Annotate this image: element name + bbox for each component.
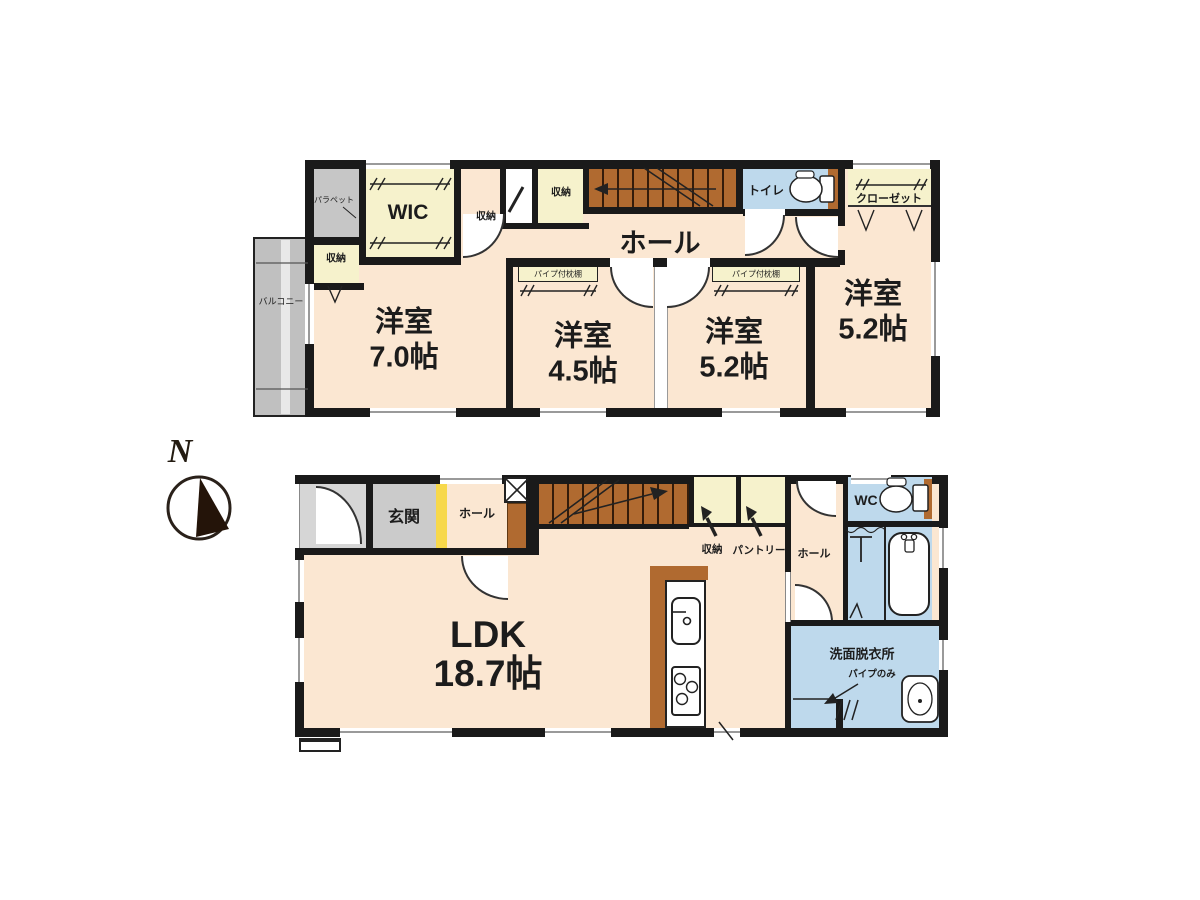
window-washroom-right bbox=[939, 640, 948, 670]
pantry-label: パントリー bbox=[732, 543, 785, 558]
pantry-1f bbox=[741, 477, 785, 523]
window-wc-top bbox=[851, 475, 891, 484]
storage-1f bbox=[694, 477, 736, 523]
window-ldk-bottom-2 bbox=[545, 728, 611, 737]
ldk-size: 18.7帖 bbox=[433, 653, 542, 694]
genkan-label: 玄関 bbox=[388, 503, 420, 527]
kitchen-counter-top-edge bbox=[650, 566, 708, 580]
wall-hall-right bbox=[526, 477, 539, 555]
hall-label-1f-entrance: ホール bbox=[459, 505, 495, 522]
storage-label-1f: 収納 bbox=[702, 542, 723, 557]
hall-label-1f-corridor: ホール bbox=[798, 545, 831, 561]
window-ldk-left-2 bbox=[295, 638, 304, 682]
wall-ldk-hallcol-upper bbox=[785, 477, 791, 572]
bathroom-divider bbox=[884, 527, 886, 620]
kitchen-stove-icon bbox=[671, 666, 701, 716]
bathtub-icon bbox=[888, 532, 930, 616]
wc-label: WC bbox=[854, 492, 877, 508]
stairs-floor1-base bbox=[539, 524, 689, 529]
wall-storage-pantry-bottom bbox=[689, 523, 785, 527]
floor1-fixture-icons bbox=[0, 0, 1200, 900]
ldk-label: LDK 18.7帖 bbox=[433, 616, 542, 694]
window-bath-right bbox=[939, 528, 948, 568]
window-ldk-bottom-1 bbox=[340, 728, 452, 737]
wc-door-strip bbox=[924, 479, 932, 519]
wall-porch-genkan bbox=[366, 484, 373, 548]
ldk-hallcol-opening bbox=[785, 572, 791, 622]
window-ldk-left-1 bbox=[295, 560, 304, 602]
window-ldk-bottom-3 bbox=[714, 728, 740, 737]
kitchen-counter-left-edge bbox=[650, 580, 665, 728]
floorplan-page: N bbox=[0, 0, 1200, 900]
wall-entrance-bottom bbox=[299, 548, 539, 555]
pipe-only-label: パイプのみ bbox=[848, 666, 896, 680]
stairs-floor1 bbox=[539, 484, 689, 525]
ldk-name: LDK bbox=[450, 614, 526, 655]
genkan-step-strip bbox=[436, 484, 447, 550]
washroom-pipe-stub bbox=[836, 699, 843, 728]
hall-wood-strip bbox=[507, 503, 527, 550]
entrance-step-box bbox=[299, 738, 341, 752]
kitchen-sink-icon bbox=[671, 597, 701, 645]
washroom-label: 洗面脱衣所 bbox=[829, 644, 894, 663]
window-genkan-top bbox=[440, 475, 502, 484]
floor1-plan: 玄関 ホール 収納 パントリー ホール WC 洗面脱衣所 パイプのみ LDK 1… bbox=[0, 0, 1200, 900]
